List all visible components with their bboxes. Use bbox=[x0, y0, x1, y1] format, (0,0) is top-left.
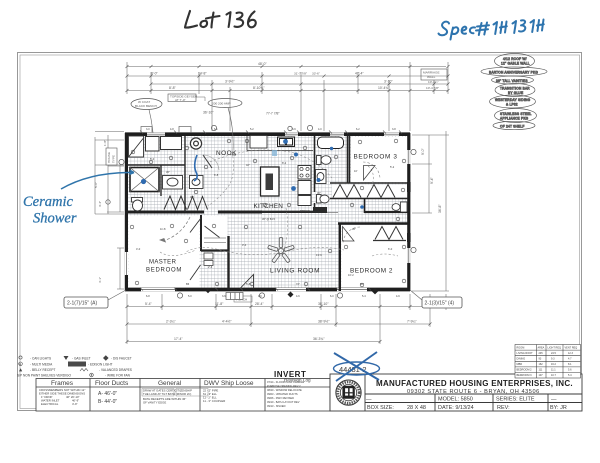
svg-text:DATE: 9/13/24: DATE: 9/13/24 bbox=[438, 405, 474, 411]
svg-text:2-1(7)/15" (A): 2-1(7)/15" (A) bbox=[67, 301, 97, 307]
svg-text:ROOM: ROOM bbox=[517, 346, 525, 349]
svg-text:1'-8": 1'-8" bbox=[103, 140, 107, 146]
svg-text:ELECTRICAL: ELECTRICAL bbox=[41, 402, 59, 406]
svg-text:5-4: 5-4 bbox=[362, 295, 366, 298]
svg-text:4-9: 4-9 bbox=[396, 295, 400, 298]
svg-text:72": 72" bbox=[296, 282, 300, 286]
svg-text:H: H bbox=[19, 362, 21, 366]
svg-text:5.4: 5.4 bbox=[568, 374, 572, 377]
svg-text:MANUFACTURED HOUSING ENTERPRIS: MANUFACTURED HOUSING ENTERPRISES, INC. bbox=[376, 379, 573, 388]
svg-text:THE LAND AT TILT BATH (MINOR: THE LAND AT TILT BATH (MINOR 2C) bbox=[143, 392, 191, 396]
svg-text:8'-10¾": 8'-10¾" bbox=[253, 86, 265, 90]
svg-text:08/20 - WINDOW RELOCATE: 08/20 - WINDOW RELOCATE bbox=[267, 388, 302, 392]
svg-text:4'-9": 4'-9" bbox=[72, 402, 78, 406]
svg-text:09/10 - BATH LAYOUT REV: 09/10 - BATH LAYOUT REV bbox=[267, 400, 300, 404]
svg-text:TYPE: TYPE bbox=[112, 155, 116, 163]
svg-text:3-8: 3-8 bbox=[392, 128, 396, 131]
svg-text:BEDROOM 2: BEDROOM 2 bbox=[350, 268, 394, 275]
svg-text:APPLIANCE PKG: APPLIANCE PKG bbox=[500, 117, 529, 121]
svg-text:Shower: Shower bbox=[33, 211, 77, 227]
svg-text:200 200 AMP: 200 200 AMP bbox=[212, 102, 231, 106]
svg-text:9-0: 9-0 bbox=[258, 295, 262, 298]
svg-text:4/12 ROOF W/: 4/12 ROOF W/ bbox=[503, 57, 527, 61]
svg-text:3-9: 3-9 bbox=[292, 128, 296, 131]
svg-text:Frames: Frames bbox=[51, 380, 74, 387]
svg-text:13'-6: 13'-6 bbox=[316, 253, 322, 257]
svg-text:07/14 - FLOOR PLAN CHANGE: 07/14 - FLOOR PLAN CHANGE bbox=[267, 380, 304, 384]
svg-text:162: 162 bbox=[539, 363, 544, 366]
svg-text:7'-9¼": 7'-9¼" bbox=[407, 320, 417, 324]
svg-text:- D/S FAUCET: - D/S FAUCET bbox=[111, 357, 132, 361]
svg-text:- WIRE FOR FAN: - WIRE FOR FAN bbox=[105, 374, 131, 378]
svg-text:BY: JR: BY: JR bbox=[550, 405, 567, 411]
svg-text:245: 245 bbox=[539, 352, 544, 355]
svg-text:28 X 48: 28 X 48 bbox=[407, 405, 426, 411]
svg-text:36'-3¾": 36'-3¾" bbox=[313, 337, 325, 341]
svg-text:38'-10": 38'-10" bbox=[318, 302, 329, 306]
svg-text:36" @ 84.5: 36" @ 84.5 bbox=[262, 217, 275, 221]
svg-text:5.6: 5.6 bbox=[568, 369, 572, 372]
svg-text:BOX SIZE:: BOX SIZE: bbox=[367, 405, 394, 411]
svg-text:4'-0: 4'-0 bbox=[136, 247, 141, 251]
svg-text:33'-6": 33'-6" bbox=[312, 72, 320, 76]
svg-text:10.7: 10.7 bbox=[551, 374, 556, 377]
svg-text:24.5: 24.5 bbox=[551, 352, 556, 355]
svg-text:MASTER: MASTER bbox=[149, 260, 178, 266]
svg-text:3-0: 3-0 bbox=[146, 128, 150, 131]
svg-text:- EDISON LIGHT: - EDISON LIGHT bbox=[88, 363, 112, 367]
svg-text:2'-6: 2'-6 bbox=[208, 265, 213, 269]
svg-text:6-1: 6-1 bbox=[214, 128, 218, 131]
svg-text:DINING: DINING bbox=[517, 358, 526, 361]
svg-text:STAINLESS STEEL: STAINLESS STEEL bbox=[500, 112, 532, 116]
svg-text:BEDROOM 2: BEDROOM 2 bbox=[517, 369, 533, 372]
svg-text:Floor Ducts: Floor Ducts bbox=[95, 380, 129, 387]
svg-text:11'-8": 11'-8" bbox=[215, 302, 224, 306]
svg-text:—: — bbox=[551, 397, 557, 403]
svg-text:B- 44'-0": B- 44'-0" bbox=[98, 399, 117, 405]
svg-text:8'-0": 8'-0" bbox=[151, 72, 159, 76]
svg-text:6-8: 6-8 bbox=[146, 295, 150, 298]
svg-text:4-8: 4-8 bbox=[170, 128, 174, 131]
svg-text:09302 STATE ROUTE 6 - BRYAN, O: 09302 STATE ROUTE 6 - BRYAN, OH 43506 bbox=[407, 389, 540, 395]
svg-text:9'-4": 9'-4" bbox=[430, 176, 434, 184]
svg-text:60": 60" bbox=[360, 282, 364, 286]
svg-text:14'-8": 14'-8" bbox=[198, 72, 207, 76]
svg-text:12.3: 12.3 bbox=[568, 352, 573, 355]
svg-text:36" TALL VANITIES: 36" TALL VANITIES bbox=[496, 79, 528, 83]
svg-text:4-6: 4-6 bbox=[296, 295, 300, 298]
svg-text:2'-3¼": 2'-3¼" bbox=[166, 320, 176, 324]
svg-text:10'-4¾": 10'-4¾" bbox=[378, 86, 390, 90]
svg-text:9'-0": 9'-0" bbox=[421, 147, 425, 155]
svg-text:WALL: WALL bbox=[427, 75, 436, 79]
svg-text:4.7: 4.7 bbox=[568, 358, 572, 361]
svg-text:6-2: 6-2 bbox=[356, 128, 360, 131]
svg-text:6-0: 6-0 bbox=[330, 295, 334, 298]
svg-text:AT 7'-0": AT 7'-0" bbox=[175, 98, 186, 102]
svg-text:KITCHEN: KITCHEN bbox=[254, 203, 285, 210]
svg-text:4-0: 4-0 bbox=[318, 128, 322, 131]
svg-text:9.3: 9.3 bbox=[551, 358, 555, 361]
svg-text:OF 24T SHELF: OF 24T SHELF bbox=[500, 125, 525, 129]
svg-text:- CAN LIGHTS: - CAN LIGHTS bbox=[30, 357, 51, 361]
svg-text:SERIES: ELITE: SERIES: ELITE bbox=[496, 397, 535, 403]
svg-text:LIVING ROOT: LIVING ROOT bbox=[517, 352, 534, 355]
svg-text:- BELLY RECEPT: - BELLY RECEPT bbox=[30, 368, 55, 372]
svg-text:BY GLUE: BY GLUE bbox=[508, 91, 523, 95]
svg-text:MARRIAGE: MARRIAGE bbox=[423, 71, 440, 75]
svg-text:- GAS INLET: - GAS INLET bbox=[72, 357, 91, 361]
svg-text:36": 36" bbox=[352, 227, 356, 231]
svg-text:TRANSITION BAR: TRANSITION BAR bbox=[500, 87, 530, 91]
svg-text:4'-1": 4'-1" bbox=[98, 277, 102, 283]
svg-text:General: General bbox=[158, 380, 182, 387]
svg-text:11.1: 11.1 bbox=[551, 369, 556, 372]
svg-text:BARTON ANNIVERSARY PKG: BARTON ANNIVERSARY PKG bbox=[489, 71, 538, 75]
svg-text:6'-0: 6'-0 bbox=[388, 247, 393, 251]
svg-text:AREA: AREA bbox=[538, 346, 545, 349]
svg-text:5'-0: 5'-0 bbox=[150, 157, 155, 161]
svg-text:8.1: 8.1 bbox=[568, 363, 572, 366]
svg-text:47'-4": 47'-4" bbox=[355, 72, 364, 76]
svg-text:8'-8": 8'-8" bbox=[169, 86, 177, 90]
svg-text:09/03 - UPDATED DUCTS: 09/03 - UPDATED DUCTS bbox=[267, 392, 298, 396]
svg-text:5-2: 5-2 bbox=[250, 128, 254, 131]
svg-text:111: 111 bbox=[539, 369, 543, 372]
svg-text:10'-4 7/8": 10'-4 7/8" bbox=[426, 86, 439, 90]
svg-text:B6: B6 bbox=[186, 282, 190, 286]
svg-text:12" GABLE WALL: 12" GABLE WALL bbox=[501, 62, 530, 66]
svg-text:10'-2: 10'-2 bbox=[348, 273, 354, 277]
svg-text:48'-0": 48'-0" bbox=[258, 62, 267, 66]
svg-text:PURPOSE OPENING REV 2: PURPOSE OPENING REV 2 bbox=[267, 384, 301, 388]
svg-text:Ceramic: Ceramic bbox=[23, 194, 74, 210]
svg-text:30": 30" bbox=[190, 195, 194, 199]
svg-text:11 - 3" COUPLER: 11 - 3" COUPLER bbox=[203, 399, 225, 403]
svg-text:& LP62: & LP62 bbox=[506, 103, 518, 107]
svg-text:16.2: 16.2 bbox=[551, 363, 556, 366]
svg-text:5'-4": 5'-4" bbox=[145, 302, 153, 306]
svg-text:36'-10": 36'-10" bbox=[203, 111, 214, 115]
svg-text:- VALANCED DRAPES: - VALANCED DRAPES bbox=[99, 368, 132, 372]
svg-text:- MULTI MEDIA: - MULTI MEDIA bbox=[30, 363, 53, 367]
svg-text:VENT REQ: VENT REQ bbox=[565, 346, 578, 349]
svg-text:LIVING ROOM: LIVING ROOM bbox=[270, 268, 321, 275]
svg-text:MODEL: 5850: MODEL: 5850 bbox=[438, 397, 473, 403]
svg-text:38'-9½": 38'-9½" bbox=[318, 320, 330, 324]
svg-text:MBR: MBR bbox=[517, 363, 523, 366]
svg-text:FRIDGE: FRIDGE bbox=[300, 209, 310, 213]
svg-text:5'-2: 5'-2 bbox=[390, 165, 395, 169]
svg-text:4'-4½": 4'-4½" bbox=[222, 320, 232, 324]
svg-text:09/13 - ISSUED: 09/13 - ISSUED bbox=[267, 404, 286, 408]
svg-text:REV:: REV: bbox=[497, 405, 510, 411]
svg-text:28'-4": 28'-4" bbox=[255, 302, 264, 306]
svg-text:A- 46'-0": A- 46'-0" bbox=[98, 391, 117, 397]
svg-text:BLACK BENCH: BLACK BENCH bbox=[135, 104, 157, 108]
svg-text:30": 30" bbox=[317, 191, 321, 195]
svg-text:BEDROOM 3: BEDROOM 3 bbox=[517, 374, 533, 377]
svg-text:OF VANITY EDGE: OF VANITY EDGE bbox=[143, 401, 166, 405]
svg-text:DN: DN bbox=[232, 153, 236, 157]
svg-text:5-0: 5-0 bbox=[188, 295, 192, 298]
svg-text:BEDROOM 3: BEDROOM 3 bbox=[354, 154, 399, 161]
svg-text:3'-4": 3'-4" bbox=[98, 201, 102, 207]
svg-text:8'-2: 8'-2 bbox=[282, 161, 287, 165]
svg-text:WESTERDAY SIDING: WESTERDAY SIDING bbox=[495, 98, 531, 102]
svg-text:INVERT: INVERT bbox=[274, 370, 306, 379]
svg-text:107: 107 bbox=[539, 374, 544, 377]
svg-text:36'-8": 36'-8" bbox=[438, 204, 442, 213]
svg-text:36": 36" bbox=[166, 170, 170, 174]
svg-text:42": 42" bbox=[246, 163, 250, 167]
svg-text:5'-8: 5'-8 bbox=[246, 282, 251, 286]
svg-text:S/P NON PAINT SHELVES VERDIGO: S/P NON PAINT SHELVES VERDIGO bbox=[17, 374, 71, 378]
svg-text:77-7 7/8": 77-7 7/8" bbox=[266, 112, 280, 116]
svg-text:17'-4": 17'-4" bbox=[174, 337, 183, 341]
svg-text:BEDROOM: BEDROOM bbox=[146, 268, 183, 274]
svg-text:2-1(3)/15" (4): 2-1(3)/15" (4) bbox=[425, 301, 455, 307]
svg-text:09/06 - DWV REVISED: 09/06 - DWV REVISED bbox=[267, 396, 294, 400]
svg-text:3'-9½": 3'-9½" bbox=[225, 80, 235, 84]
svg-text:DWV Ship Loose: DWV Ship Loose bbox=[204, 380, 254, 387]
svg-text:10': 10' bbox=[354, 169, 358, 173]
svg-text:5'-0": 5'-0" bbox=[94, 182, 98, 188]
svg-text:3-6: 3-6 bbox=[222, 295, 226, 298]
svg-text:LIGHT REQ: LIGHT REQ bbox=[548, 346, 561, 349]
svg-text:—: — bbox=[366, 397, 372, 403]
svg-text:3'-10": 3'-10" bbox=[384, 80, 393, 84]
svg-text:31'-7 7/8": 31'-7 7/8" bbox=[294, 72, 307, 76]
svg-text:3'-0: 3'-0 bbox=[242, 243, 247, 247]
svg-text:6'-8: 6'-8 bbox=[214, 173, 219, 177]
svg-text:11'-8: 11'-8 bbox=[160, 227, 166, 231]
svg-text:HOUSE: HOUSE bbox=[107, 152, 111, 163]
svg-text:10'-4¾": 10'-4¾" bbox=[428, 80, 438, 84]
